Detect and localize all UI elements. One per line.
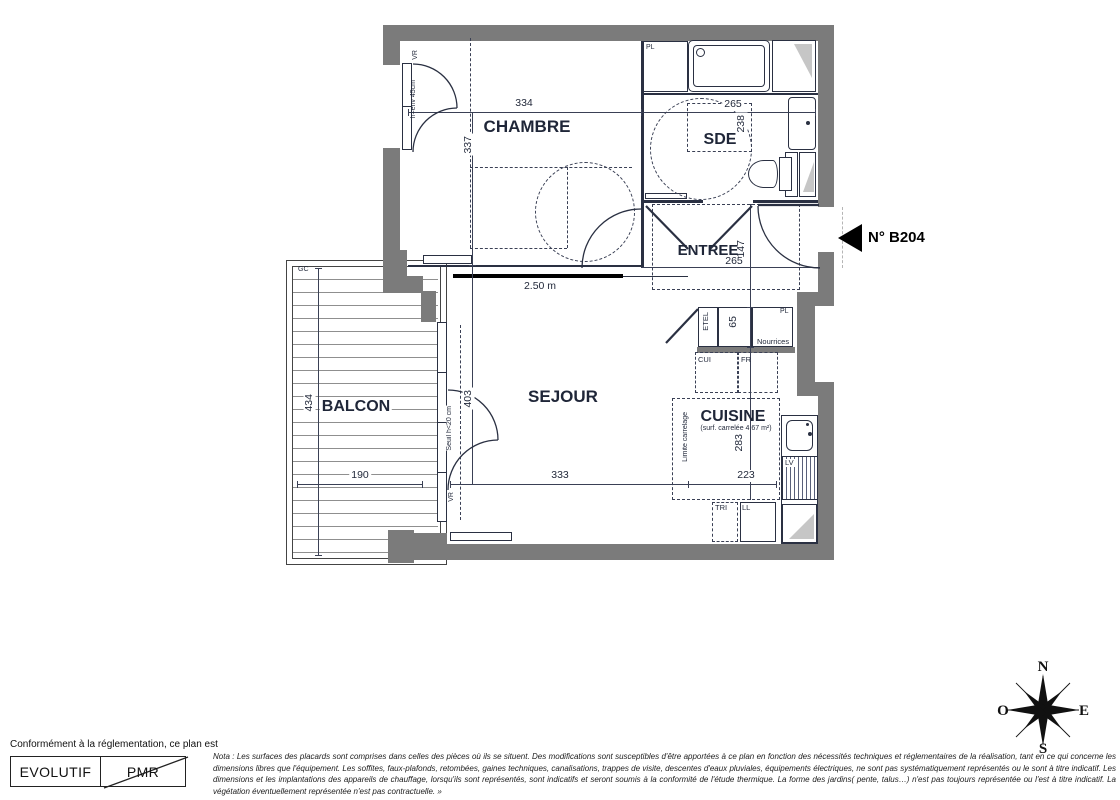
washbasin — [788, 97, 816, 150]
dim-sde-depth: 238 — [736, 113, 748, 135]
chambre-floor-edge — [408, 265, 641, 267]
washbasin-drain-dot — [806, 121, 810, 125]
note-ll: LL — [742, 504, 750, 512]
wall-segment — [797, 306, 815, 384]
shower-drain — [696, 48, 705, 57]
wc-cistern — [779, 157, 792, 191]
room-label-cuisine: CUISINE — [699, 408, 768, 426]
dimension-tick — [408, 109, 409, 116]
kitchen-closet-divider — [751, 307, 753, 347]
room-label-sde: SDE — [702, 131, 739, 149]
dimension-tick — [747, 398, 754, 399]
dimension-tick — [776, 481, 777, 488]
dim-balcon-width: 190 — [349, 470, 371, 482]
note-seuil: Seuil h<20 cm — [446, 406, 453, 451]
legend-evolutif-box: EVOLUTIF — [11, 757, 101, 786]
dim-entree-depth: 147 — [736, 238, 748, 260]
compass-north-label: N — [1038, 659, 1049, 675]
compass-west-label: O — [997, 703, 1009, 719]
partition-sde-entree — [753, 200, 818, 203]
note-etel: ETEL — [702, 312, 710, 331]
radiator-sejour — [450, 532, 512, 541]
note-gc-balcon: GC — [298, 266, 309, 273]
partition-chambre-entree — [641, 200, 644, 268]
dimension-tick — [747, 347, 754, 348]
kitchen-cabinet-bottom — [782, 504, 817, 543]
dimension-tick — [315, 555, 322, 556]
room-label-balcon: BALCON — [320, 398, 392, 416]
dimension-line — [297, 484, 423, 485]
etel-door-leaf — [666, 309, 698, 343]
kitchen-faucet-dot — [806, 423, 809, 426]
wall-segment — [390, 25, 834, 41]
note-vr-chambre: VR — [412, 50, 419, 60]
dim-balcon-depth: 434 — [304, 392, 316, 414]
note-vr-sejour: VR — [448, 492, 455, 502]
dimension-line — [750, 204, 751, 500]
note-nourrices: Nourrices — [757, 338, 789, 346]
dimension-tick — [747, 204, 754, 205]
cabinet-sde — [799, 152, 816, 197]
dimension-tick — [469, 265, 476, 266]
dimension-tick — [297, 481, 298, 488]
wall-segment — [414, 533, 447, 546]
legend-boxes: EVOLUTIF PMR — [10, 756, 186, 787]
chambre-window-leaf-arc — [413, 108, 457, 152]
window-zone-dash — [460, 325, 461, 520]
note-limite-carrelage: Limite carrelage — [682, 412, 689, 462]
partition-shower-row — [643, 93, 818, 95]
note-gc-chambre: GC — [393, 131, 400, 142]
floor-plan-page: N S O E CHAMBRE SDE ENTREE SEJOUR CUISIN… — [0, 0, 1120, 800]
dim-chambre-depth: 337 — [463, 134, 475, 156]
kitchen-closet-divider — [717, 307, 719, 347]
dim-etel-width: 65 — [728, 314, 740, 330]
nota-disclaimer-text: Nota : Les surfaces des placards sont co… — [213, 751, 1116, 797]
note-tri: TRI — [715, 504, 727, 512]
cuisine-surface-note: (surf. carrelée 4.67 m²) — [700, 425, 771, 432]
dim-cuisine-width: 223 — [735, 470, 757, 482]
partition-sde-entree — [641, 200, 703, 203]
wall-segment — [818, 392, 834, 560]
sejour-window-mullion — [437, 472, 447, 473]
wall-segment — [388, 530, 414, 563]
chambre-window-leaf-arc — [413, 64, 457, 108]
dimension-tick — [315, 268, 322, 269]
bay-partition-bar — [453, 274, 623, 278]
wall-segment — [797, 292, 834, 306]
dimension-tick — [422, 481, 423, 488]
kitchen-faucet-dot — [808, 432, 812, 436]
wall-segment — [414, 544, 834, 560]
note-lv: LV — [784, 459, 795, 467]
radiator-chambre — [423, 255, 472, 264]
dimension-tick — [688, 481, 689, 488]
note-fr: FR — [741, 356, 751, 364]
room-label-chambre: CHAMBRE — [482, 118, 573, 137]
dim-sejour-depth: 403 — [463, 388, 475, 410]
note-pl-sde: PL — [646, 44, 655, 51]
sejour-window-mullion — [437, 372, 447, 373]
cabinet-top-right — [772, 40, 816, 92]
chambre-turning-circle — [535, 162, 635, 262]
dim-bay-length: 2.50 m — [522, 281, 558, 293]
sejour-window-leaf-arc — [448, 440, 498, 490]
dimension-tick — [641, 109, 642, 116]
wall-segment — [818, 252, 834, 292]
dimension-line — [450, 484, 777, 485]
note-window-height: h=env 45cm — [410, 80, 417, 118]
compass-rose-icon: N S O E — [997, 659, 1089, 757]
wc-bowl — [748, 160, 778, 188]
note-cui: CUI — [698, 356, 711, 364]
wall-segment — [383, 148, 400, 252]
dim-chambre-width: 334 — [513, 98, 535, 110]
dim-sejour-width: 333 — [549, 470, 571, 482]
dimension-line — [408, 112, 816, 113]
legend-intro-text: Conformément à la réglementation, ce pla… — [10, 739, 218, 750]
dimension-line — [472, 112, 473, 484]
room-label-sejour: SEJOUR — [526, 388, 600, 407]
compass-east-label: E — [1079, 703, 1089, 719]
dimension-tick — [815, 109, 816, 116]
wall-segment — [383, 250, 407, 293]
legend-pmr-box: PMR — [101, 757, 185, 786]
dimension-tick — [450, 481, 451, 488]
unit-number-label: N° B204 — [868, 229, 925, 246]
wall-segment — [818, 25, 834, 207]
note-pl-kitchen: PL — [780, 308, 789, 315]
dim-cuisine-depth: 283 — [734, 432, 746, 454]
wall-segment — [421, 291, 436, 322]
dim-sde-width: 265 — [722, 99, 744, 111]
exterior-landing-dash — [842, 207, 843, 268]
wall-segment — [383, 25, 400, 65]
dimension-tick — [747, 307, 754, 308]
